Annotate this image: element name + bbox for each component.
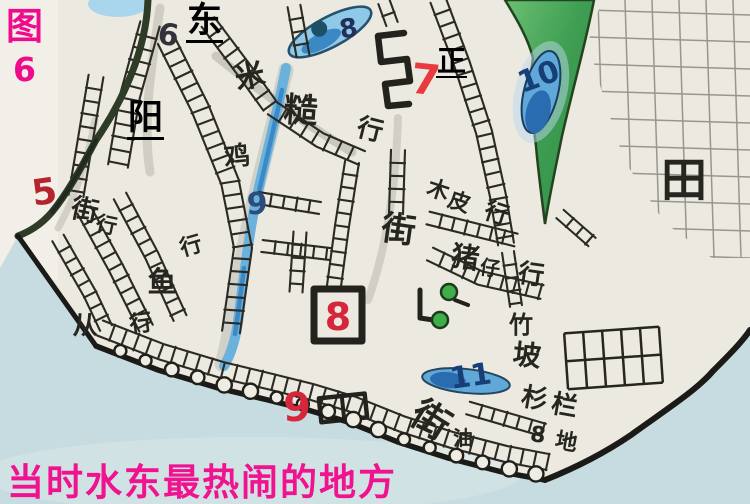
figure-label-number: 6 <box>6 53 43 86</box>
hand-drawn-map-photo: 米糙行鸡行街行鱼行从街木皮行猪仔行竹坡杉栏地油街田 567889910118 图… <box>0 0 750 504</box>
map-canvas: 米糙行鸡行街行鱼行从街木皮行猪仔行竹坡杉栏地油街田 567889910118 <box>0 0 750 504</box>
place-label-tian: 田 <box>661 153 707 207</box>
street-overlay-yang: 阳 <box>127 100 164 140</box>
marker-8: 8 <box>325 295 351 339</box>
marker-9: 9 <box>283 385 311 431</box>
place-label-shan-lan: 栏 <box>549 389 580 423</box>
place-label-zhu-zai-hang: 行 <box>515 257 546 291</box>
place-label-yu-hang: 行 <box>127 309 155 339</box>
tree-dot <box>432 312 448 328</box>
marker-11: 11 <box>448 356 494 396</box>
place-label-zhu-po: 竹 <box>508 311 533 339</box>
place-label-cong: 从 <box>72 311 97 340</box>
place-label-you: 油 <box>453 426 473 450</box>
place-label-zhu-po: 坡 <box>511 338 542 374</box>
tree-dot <box>441 284 457 300</box>
place-label-shan-lan: 杉 <box>519 382 550 416</box>
place-label-jie-center: 街 <box>378 208 418 252</box>
place-label-zhu-zai-hang: 猪 <box>449 239 481 276</box>
street-overlay-dong: 东 <box>186 3 223 43</box>
place-label-ji: 鸡 <box>222 140 252 174</box>
figure-label: 图 6 <box>6 8 43 86</box>
figure-label-char: 图 <box>6 8 43 45</box>
place-label-mi-cao-hang: 糙 <box>282 90 319 132</box>
marker-9: 9 <box>247 187 268 222</box>
caption: 当时水东最热闹的地方 <box>7 452 397 504</box>
street-overlay-zheng: 正 <box>436 46 467 78</box>
place-label-zhu-zai-hang: 仔 <box>478 255 501 282</box>
place-label-di: 地 <box>553 428 579 456</box>
place-label-yu-hang: 鱼 <box>147 265 176 299</box>
